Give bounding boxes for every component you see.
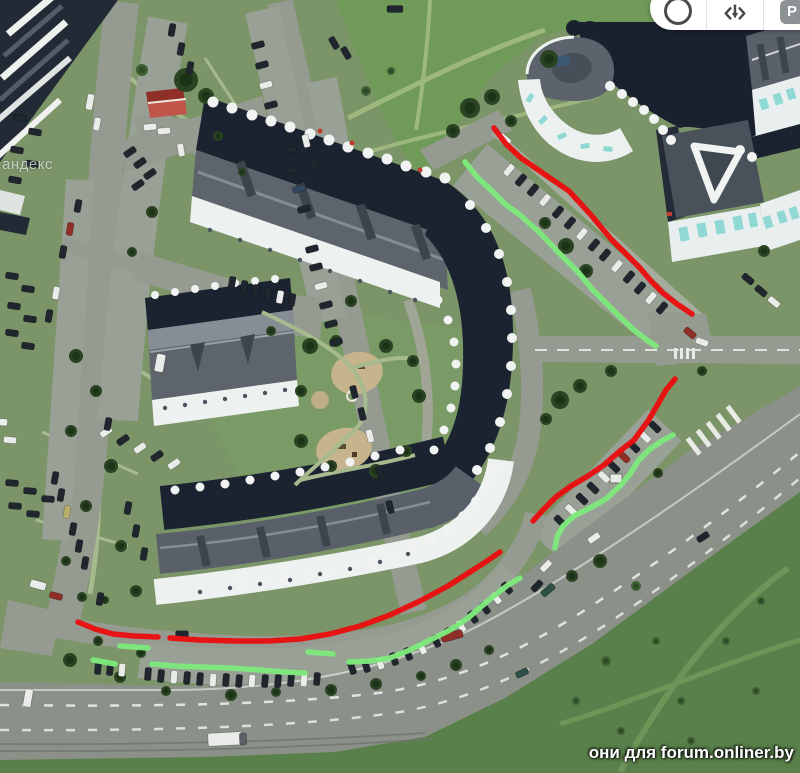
forum-watermark: они для forum.onliner.by	[589, 743, 794, 763]
tilt-3d-button[interactable]	[707, 0, 763, 30]
satellite-map[interactable]	[0, 0, 800, 773]
compass-icon	[664, 0, 692, 25]
map-toolbar: P	[650, 0, 800, 30]
rotate-3d-icon	[722, 0, 748, 25]
kiosk-red-roof	[146, 88, 187, 118]
parking-button[interactable]: P	[764, 0, 800, 30]
compass-button[interactable]	[650, 0, 706, 30]
parking-icon: P	[780, 0, 800, 24]
map-attribution-watermark: андекс	[2, 156, 53, 173]
map-viewport: андекс P они для forum.onliner.by	[0, 0, 800, 773]
